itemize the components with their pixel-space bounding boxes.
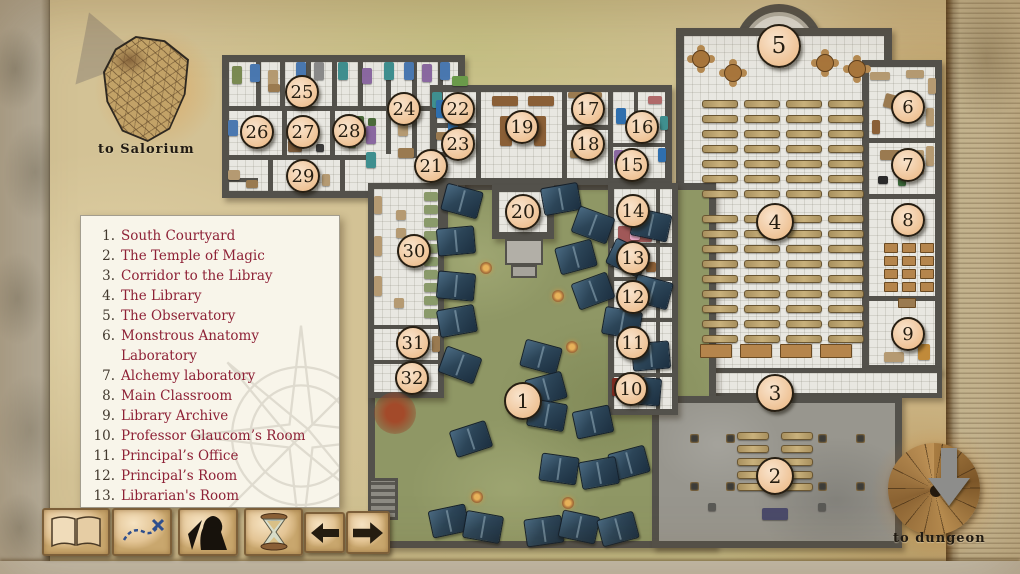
furniture xyxy=(926,108,934,126)
teacher-desk xyxy=(898,298,916,308)
classroom-desk xyxy=(920,269,934,279)
bookshelf xyxy=(828,130,864,138)
room-marker-12[interactable]: 12 xyxy=(616,280,650,314)
bookshelf xyxy=(828,230,864,238)
brazier xyxy=(818,482,827,491)
bookshelf xyxy=(786,320,822,328)
bookshelf xyxy=(702,320,738,328)
legend-item: 10.Professor Glaucom’s Room xyxy=(81,426,339,446)
campfire xyxy=(566,341,578,353)
game-screen: 1234567891011121314151617181920212223242… xyxy=(0,0,1020,574)
bookshelf xyxy=(702,275,738,283)
classroom-desk xyxy=(902,282,916,292)
furniture xyxy=(366,126,376,144)
library-desk xyxy=(740,344,772,358)
room-marker-14[interactable]: 14 xyxy=(616,194,650,228)
legend-panel: 1.South Courtyard2.The Temple of Magic3.… xyxy=(80,215,340,508)
room-marker-24[interactable]: 24 xyxy=(387,92,421,126)
hourglass-icon xyxy=(259,513,289,551)
furniture xyxy=(362,68,372,84)
furniture xyxy=(404,62,414,80)
bookshelf xyxy=(744,130,780,138)
bookshelf xyxy=(702,130,738,138)
salorium-label[interactable]: to Salorium xyxy=(98,142,195,157)
bookshelf xyxy=(786,275,822,283)
furniture xyxy=(384,62,394,80)
furniture xyxy=(432,336,440,352)
bookshelf xyxy=(828,190,864,198)
legend-item: 13.Librarian's Room xyxy=(81,486,339,506)
furniture xyxy=(338,62,348,80)
library-desk xyxy=(700,344,732,358)
bookshelf xyxy=(828,145,864,153)
time-button[interactable] xyxy=(244,508,303,556)
room-marker-13[interactable]: 13 xyxy=(616,241,650,275)
arrow-right-icon xyxy=(353,522,383,544)
classroom-desk xyxy=(920,243,934,253)
room-marker-21[interactable]: 21 xyxy=(414,149,448,183)
room-marker-7[interactable]: 7 xyxy=(891,148,925,182)
furniture xyxy=(250,64,260,82)
furniture xyxy=(616,108,626,124)
open-book-icon xyxy=(50,515,102,549)
furniture xyxy=(232,66,242,84)
brazier xyxy=(856,482,865,491)
bookshelf xyxy=(786,260,822,268)
bookshelf xyxy=(786,145,822,153)
wall-partition xyxy=(608,90,613,180)
room-marker-27[interactable]: 27 xyxy=(286,115,320,149)
bookshelf xyxy=(702,160,738,168)
furniture xyxy=(708,503,716,511)
campfire xyxy=(562,497,574,509)
character-button[interactable] xyxy=(178,508,238,556)
room-marker-23[interactable]: 23 xyxy=(441,127,475,161)
bookshelf xyxy=(702,215,738,223)
bookshelf xyxy=(828,245,864,253)
tent xyxy=(538,452,580,485)
furniture xyxy=(422,64,432,82)
room-marker-25[interactable]: 25 xyxy=(285,75,319,109)
furniture xyxy=(228,170,240,180)
bookshelf xyxy=(702,175,738,183)
room-marker-20[interactable]: 20 xyxy=(505,194,541,230)
classroom-desk xyxy=(902,243,916,253)
bookshelf xyxy=(702,245,738,253)
room-marker-31[interactable]: 31 xyxy=(396,326,430,360)
legend-item: 11.Principal’s Office xyxy=(81,446,339,466)
room-marker-18[interactable]: 18 xyxy=(571,127,605,161)
classroom-desk xyxy=(920,256,934,266)
furniture xyxy=(396,210,406,220)
furniture xyxy=(398,148,414,158)
bookshelf xyxy=(744,305,780,313)
bookshelf xyxy=(828,160,864,168)
room-marker-29[interactable]: 29 xyxy=(286,159,320,193)
wall-partition xyxy=(280,58,285,108)
wall-partition xyxy=(340,158,345,198)
bookshelf xyxy=(702,145,738,153)
bookshelf xyxy=(786,290,822,298)
reading-table xyxy=(816,54,834,72)
bookshelf xyxy=(786,245,822,253)
room-marker-2[interactable]: 2 xyxy=(756,457,794,495)
gatehouse-platform xyxy=(505,239,543,265)
bookshelf xyxy=(744,260,780,268)
furniture xyxy=(322,174,330,186)
room-marker-26[interactable]: 26 xyxy=(240,115,274,149)
bookshelf xyxy=(828,260,864,268)
temple-bench xyxy=(737,432,769,440)
dungeon-label[interactable]: to dungeon xyxy=(893,531,986,546)
bookshelf xyxy=(786,130,822,138)
red-tree xyxy=(374,392,416,434)
legend-item: 8.Main Classroom xyxy=(81,386,339,406)
bookshelf xyxy=(702,305,738,313)
bookshelf xyxy=(744,275,780,283)
bookshelf xyxy=(702,230,738,238)
bookshelf xyxy=(702,290,738,298)
wall-partition xyxy=(862,138,942,143)
furniture xyxy=(870,72,890,80)
wall-partition xyxy=(332,58,337,108)
furniture xyxy=(374,196,382,214)
arrow-left-icon xyxy=(311,523,339,543)
wall-partition xyxy=(476,90,481,180)
furniture xyxy=(918,344,930,360)
warrior-icon xyxy=(186,514,230,550)
room-marker-4[interactable]: 4 xyxy=(756,203,794,241)
bookshelf xyxy=(786,305,822,313)
room-marker-17[interactable]: 17 xyxy=(571,92,605,126)
bookshelf xyxy=(744,175,780,183)
temple-bench xyxy=(781,445,813,453)
furniture xyxy=(228,120,238,136)
furniture xyxy=(660,116,668,130)
bookshelf xyxy=(702,335,738,343)
bookshelf xyxy=(744,320,780,328)
wall-partition xyxy=(562,90,567,180)
temple-bench xyxy=(737,445,769,453)
furniture xyxy=(368,118,376,126)
furniture xyxy=(314,62,324,80)
room-marker-32[interactable]: 32 xyxy=(395,361,429,395)
bookshelf xyxy=(828,305,864,313)
legend-item: 4.The Library xyxy=(81,286,339,306)
brazier xyxy=(856,434,865,443)
corridor-shelf xyxy=(424,205,438,214)
room-marker-28[interactable]: 28 xyxy=(332,114,366,148)
furniture xyxy=(394,298,404,308)
classroom-desk xyxy=(884,243,898,253)
library-desk xyxy=(820,344,852,358)
legend-item: 6.Monstrous Anatomy Laboratory xyxy=(81,326,339,366)
furniture xyxy=(440,62,450,80)
furniture xyxy=(926,146,934,166)
bookshelf xyxy=(744,115,780,123)
furniture xyxy=(366,152,376,168)
brazier xyxy=(726,434,735,443)
furniture xyxy=(872,120,880,134)
bookshelf xyxy=(744,335,780,343)
campfire xyxy=(480,262,492,274)
bookshelf xyxy=(744,100,780,108)
corridor-shelf xyxy=(424,192,438,201)
corridor-shelf xyxy=(424,218,438,227)
brazier xyxy=(818,434,827,443)
journal-button[interactable] xyxy=(42,508,110,556)
bookshelf xyxy=(786,100,822,108)
furniture xyxy=(528,96,554,106)
furniture xyxy=(762,508,788,520)
furniture xyxy=(316,144,324,152)
bookshelf xyxy=(828,290,864,298)
legend-item: 9.Library Archive xyxy=(81,406,339,426)
furniture xyxy=(492,96,518,106)
furniture xyxy=(928,78,936,94)
furniture xyxy=(818,503,826,511)
legend-item: 3.Corridor to the Libray xyxy=(81,266,339,286)
furniture xyxy=(268,84,280,92)
room-marker-6[interactable]: 6 xyxy=(891,90,925,124)
classroom-desk xyxy=(884,256,898,266)
bottom-edge xyxy=(0,561,1020,574)
bookshelf xyxy=(744,245,780,253)
campfire xyxy=(471,491,483,503)
left-ornament-border xyxy=(0,0,50,574)
bookshelf xyxy=(786,115,822,123)
bookshelf xyxy=(786,335,822,343)
bookshelf xyxy=(828,175,864,183)
reading-table xyxy=(724,64,742,82)
bookshelf xyxy=(828,100,864,108)
tent xyxy=(436,270,476,301)
room-marker-8[interactable]: 8 xyxy=(891,203,925,237)
brazier xyxy=(726,482,735,491)
bookshelf xyxy=(828,115,864,123)
bookshelf xyxy=(744,190,780,198)
campfire xyxy=(552,290,564,302)
bookshelf xyxy=(828,335,864,343)
room-marker-1[interactable]: 1 xyxy=(504,382,542,420)
room-marker-3[interactable]: 3 xyxy=(756,374,794,412)
next-button[interactable] xyxy=(346,511,390,554)
furniture xyxy=(452,76,468,86)
legend-item: 2.The Temple of Magic xyxy=(81,246,339,266)
room-marker-9[interactable]: 9 xyxy=(891,317,925,351)
legend-item: 5.The Observatory xyxy=(81,306,339,326)
classroom-desk xyxy=(902,256,916,266)
reading-table xyxy=(692,50,710,68)
furniture xyxy=(884,352,904,362)
furniture xyxy=(878,176,888,184)
brazier xyxy=(690,434,699,443)
room-marker-5[interactable]: 5 xyxy=(757,24,801,68)
furniture xyxy=(374,276,382,296)
room-marker-10[interactable]: 10 xyxy=(614,372,648,406)
furniture xyxy=(906,70,924,78)
room-marker-19[interactable]: 19 xyxy=(505,110,539,144)
bookshelf xyxy=(828,320,864,328)
room-marker-11[interactable]: 11 xyxy=(616,326,650,360)
bookshelf xyxy=(786,190,822,198)
room-marker-16[interactable]: 16 xyxy=(625,110,659,144)
down-arrow-icon xyxy=(928,448,970,506)
classroom-desk xyxy=(884,269,898,279)
bookshelf xyxy=(702,260,738,268)
bookshelf xyxy=(786,175,822,183)
legend-item: 7.Alchemy laboratory xyxy=(81,366,339,386)
wall-partition xyxy=(268,158,273,198)
bookshelf xyxy=(744,145,780,153)
room-marker-15[interactable]: 15 xyxy=(615,148,649,182)
map-button[interactable] xyxy=(112,508,172,556)
brazier xyxy=(690,482,699,491)
furniture xyxy=(246,180,258,188)
prev-button[interactable] xyxy=(304,512,345,553)
legend-item: 12.Principal’s Room xyxy=(81,466,339,486)
bookshelf xyxy=(828,215,864,223)
gatehouse-steps xyxy=(511,265,537,278)
furniture xyxy=(374,236,382,256)
bookshelf xyxy=(786,160,822,168)
bookshelf xyxy=(828,275,864,283)
treasure-map-icon xyxy=(120,516,164,548)
bookshelf xyxy=(702,190,738,198)
legend-list: 1.South Courtyard2.The Temple of Magic3.… xyxy=(81,226,339,508)
library-desk xyxy=(780,344,812,358)
classroom-desk xyxy=(902,269,916,279)
temple-bench xyxy=(781,432,813,440)
bookshelf xyxy=(702,115,738,123)
bookshelf xyxy=(702,100,738,108)
bookshelf xyxy=(744,290,780,298)
legend-item: 1.South Courtyard xyxy=(81,226,339,246)
classroom-desk xyxy=(920,282,934,292)
furniture xyxy=(648,96,662,104)
corridor-shelf xyxy=(424,270,438,279)
tent xyxy=(436,225,476,256)
bookshelf xyxy=(744,160,780,168)
room-marker-30[interactable]: 30 xyxy=(397,234,431,268)
room-marker-22[interactable]: 22 xyxy=(441,92,475,126)
classroom-desk xyxy=(884,282,898,292)
wall-partition xyxy=(862,194,942,199)
furniture xyxy=(658,148,666,162)
reading-table xyxy=(848,60,866,78)
